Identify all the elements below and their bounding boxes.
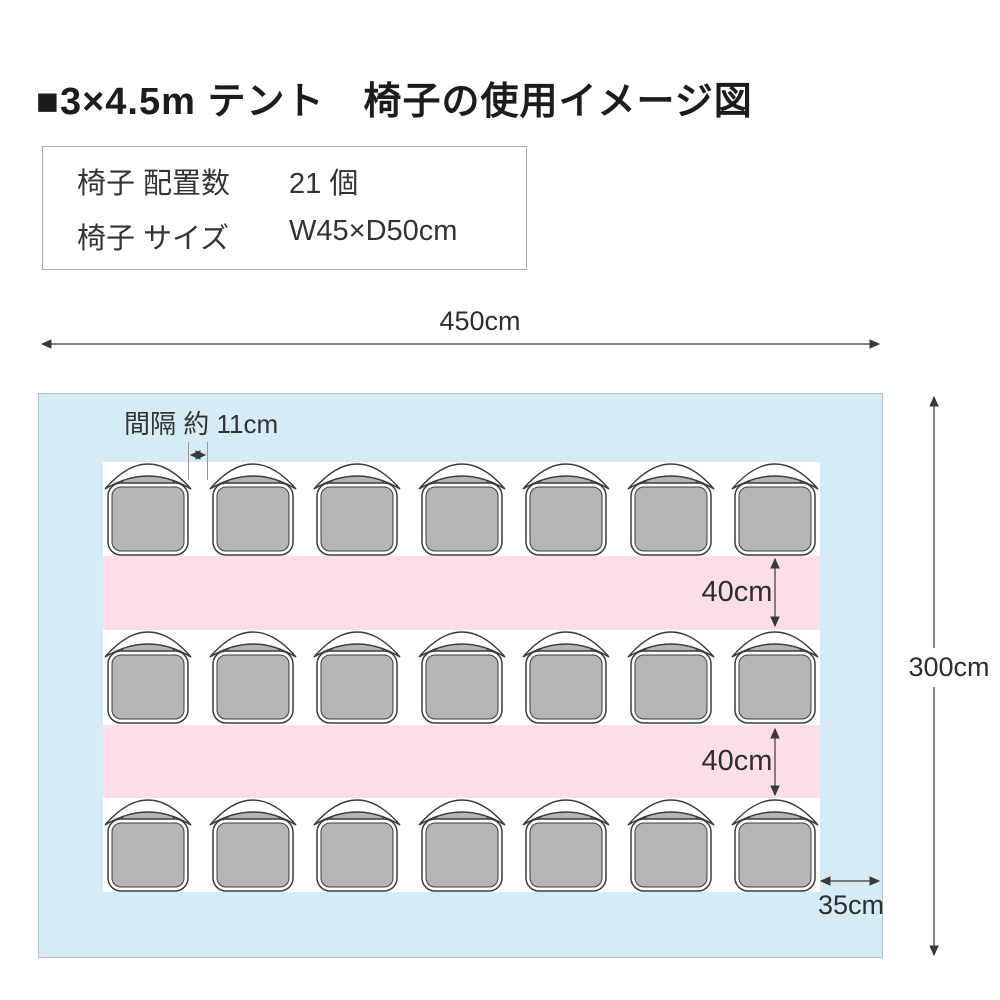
info-row-size: 椅子 サイズ W45×D50cm <box>77 215 526 257</box>
chair-seat <box>112 487 184 551</box>
chair <box>626 630 716 724</box>
chair-size-label: 椅子 サイズ <box>77 215 289 257</box>
chair-row-2 <box>103 630 820 725</box>
chair <box>521 798 611 892</box>
chair <box>312 462 402 556</box>
page-title: ■3×4.5m テント 椅子の使用イメージ図 <box>36 70 753 125</box>
chair <box>208 462 298 556</box>
chair <box>208 630 298 724</box>
chair <box>312 630 402 724</box>
chair-seat <box>635 823 707 887</box>
chair <box>730 462 820 556</box>
chair-seat <box>739 655 811 719</box>
chair <box>521 630 611 724</box>
chair-seat <box>530 487 602 551</box>
chair <box>730 798 820 892</box>
chair-seat <box>426 655 498 719</box>
chair-size-value: W45×D50cm <box>289 215 457 257</box>
tent-area <box>38 393 883 958</box>
info-row-count: 椅子 配置数 21 個 <box>77 160 526 202</box>
chair-seat <box>635 655 707 719</box>
chair <box>208 798 298 892</box>
chair-seat <box>321 655 393 719</box>
chair-row-3 <box>103 798 820 892</box>
chair <box>626 798 716 892</box>
tent-layout-diagram: ■3×4.5m テント 椅子の使用イメージ図 椅子 配置数 21 個 椅子 サイ… <box>0 0 1000 1000</box>
chair <box>417 462 507 556</box>
chair <box>312 798 402 892</box>
chair-seat <box>217 655 289 719</box>
width-dimension-label: 450cm <box>380 306 580 337</box>
chair-seat <box>426 487 498 551</box>
chair <box>417 798 507 892</box>
chair-seat <box>321 823 393 887</box>
chair-seat <box>217 823 289 887</box>
chair-seat <box>112 655 184 719</box>
chair <box>103 630 193 724</box>
chair-info-box: 椅子 配置数 21 個 椅子 サイズ W45×D50cm <box>42 146 527 270</box>
chair-gap-label: 間隔 約 11cm <box>124 404 278 441</box>
chair-seat <box>112 823 184 887</box>
chair-seat <box>426 823 498 887</box>
aisle-gap-label-2: 40cm <box>697 745 777 778</box>
chair-count-value: 21 個 <box>289 160 358 202</box>
chair-row-band-2 <box>103 630 820 725</box>
chair-row-band-3 <box>103 798 820 892</box>
height-dimension-label: 300cm <box>903 648 995 687</box>
chair <box>103 462 193 556</box>
chair <box>626 462 716 556</box>
chair <box>103 798 193 892</box>
chair-seat <box>530 823 602 887</box>
chair-row-1 <box>103 462 820 556</box>
chair-seat <box>321 487 393 551</box>
chair-seat <box>530 655 602 719</box>
chair-seat <box>739 487 811 551</box>
chair <box>730 630 820 724</box>
chair-count-label: 椅子 配置数 <box>77 160 289 202</box>
aisle-gap-label-1: 40cm <box>697 576 777 609</box>
chair <box>521 462 611 556</box>
chair <box>417 630 507 724</box>
chair-seat <box>217 487 289 551</box>
chair-seat <box>635 487 707 551</box>
chair-seat <box>739 823 811 887</box>
chair-row-band-1 <box>103 462 820 556</box>
seating-strips <box>103 393 820 958</box>
side-margin-label: 35cm <box>809 890 893 921</box>
